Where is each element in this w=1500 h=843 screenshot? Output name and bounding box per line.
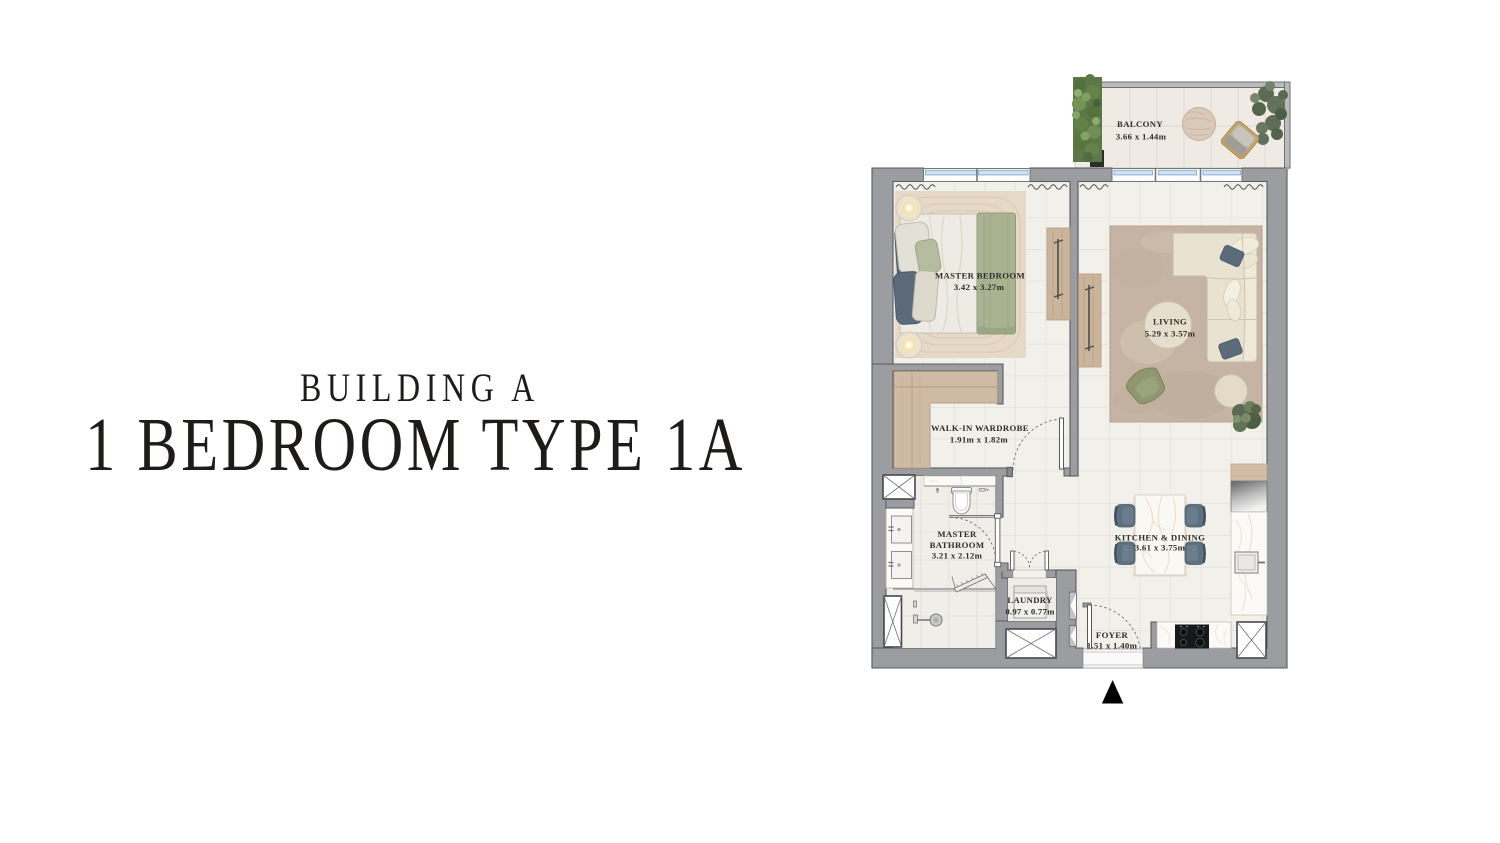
svg-text:FOYER: FOYER xyxy=(1096,630,1129,640)
svg-text:KITCHEN & DINING: KITCHEN & DINING xyxy=(1115,533,1206,543)
svg-text:3.61 x 3.75m: 3.61 x 3.75m xyxy=(1135,543,1186,553)
svg-text:5.29 x 3.57m: 5.29 x 3.57m xyxy=(1145,329,1196,339)
svg-text:3.66 x 1.44m: 3.66 x 1.44m xyxy=(1116,132,1167,142)
svg-text:MASTER BEDROOM: MASTER BEDROOM xyxy=(935,271,1025,281)
svg-text:0.97 x 0.77m: 0.97 x 0.77m xyxy=(1005,607,1055,617)
svg-text:LAUNDRY: LAUNDRY xyxy=(1007,595,1053,605)
svg-text:3.42 x 3.27m: 3.42 x 3.27m xyxy=(954,282,1005,292)
svg-text:LIVING: LIVING xyxy=(1153,317,1187,327)
svg-text:BATHROOM: BATHROOM xyxy=(930,540,985,550)
svg-text:1.91m x 1.82m: 1.91m x 1.82m xyxy=(950,435,1009,445)
svg-text:3.21 x 2.12m: 3.21 x 2.12m xyxy=(932,551,983,561)
svg-text:BALCONY: BALCONY xyxy=(1117,119,1163,129)
svg-text:MASTER: MASTER xyxy=(937,529,977,539)
svg-text:1.51 x 1.40m: 1.51 x 1.40m xyxy=(1087,641,1138,651)
svg-text:WALK-IN WARDROBE: WALK-IN WARDROBE xyxy=(931,423,1029,433)
